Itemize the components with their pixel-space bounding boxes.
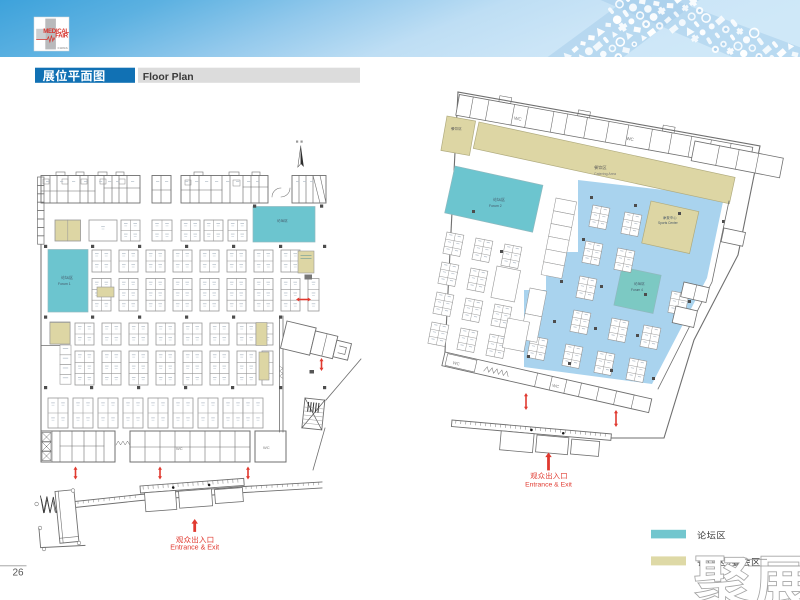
svg-text:Forum 4: Forum 4 — [631, 288, 643, 292]
svg-text:26: 26 — [13, 568, 25, 579]
svg-text:Catering Area: Catering Area — [594, 172, 616, 176]
svg-text:CHINA: CHINA — [58, 46, 69, 50]
svg-text:Forum 2: Forum 2 — [489, 204, 502, 208]
svg-text:FAIR: FAIR — [55, 33, 69, 40]
svg-text:Sports Center: Sports Center — [658, 221, 679, 225]
svg-text:Floor Plan: Floor Plan — [143, 72, 194, 83]
svg-text:Entrance & Exit: Entrance & Exit — [170, 544, 219, 552]
svg-text:WC: WC — [176, 446, 183, 451]
svg-text:WC: WC — [263, 445, 270, 450]
svg-text:Forum 1: Forum 1 — [58, 282, 71, 286]
svg-text:Entrance & Exit: Entrance & Exit — [525, 482, 572, 489]
